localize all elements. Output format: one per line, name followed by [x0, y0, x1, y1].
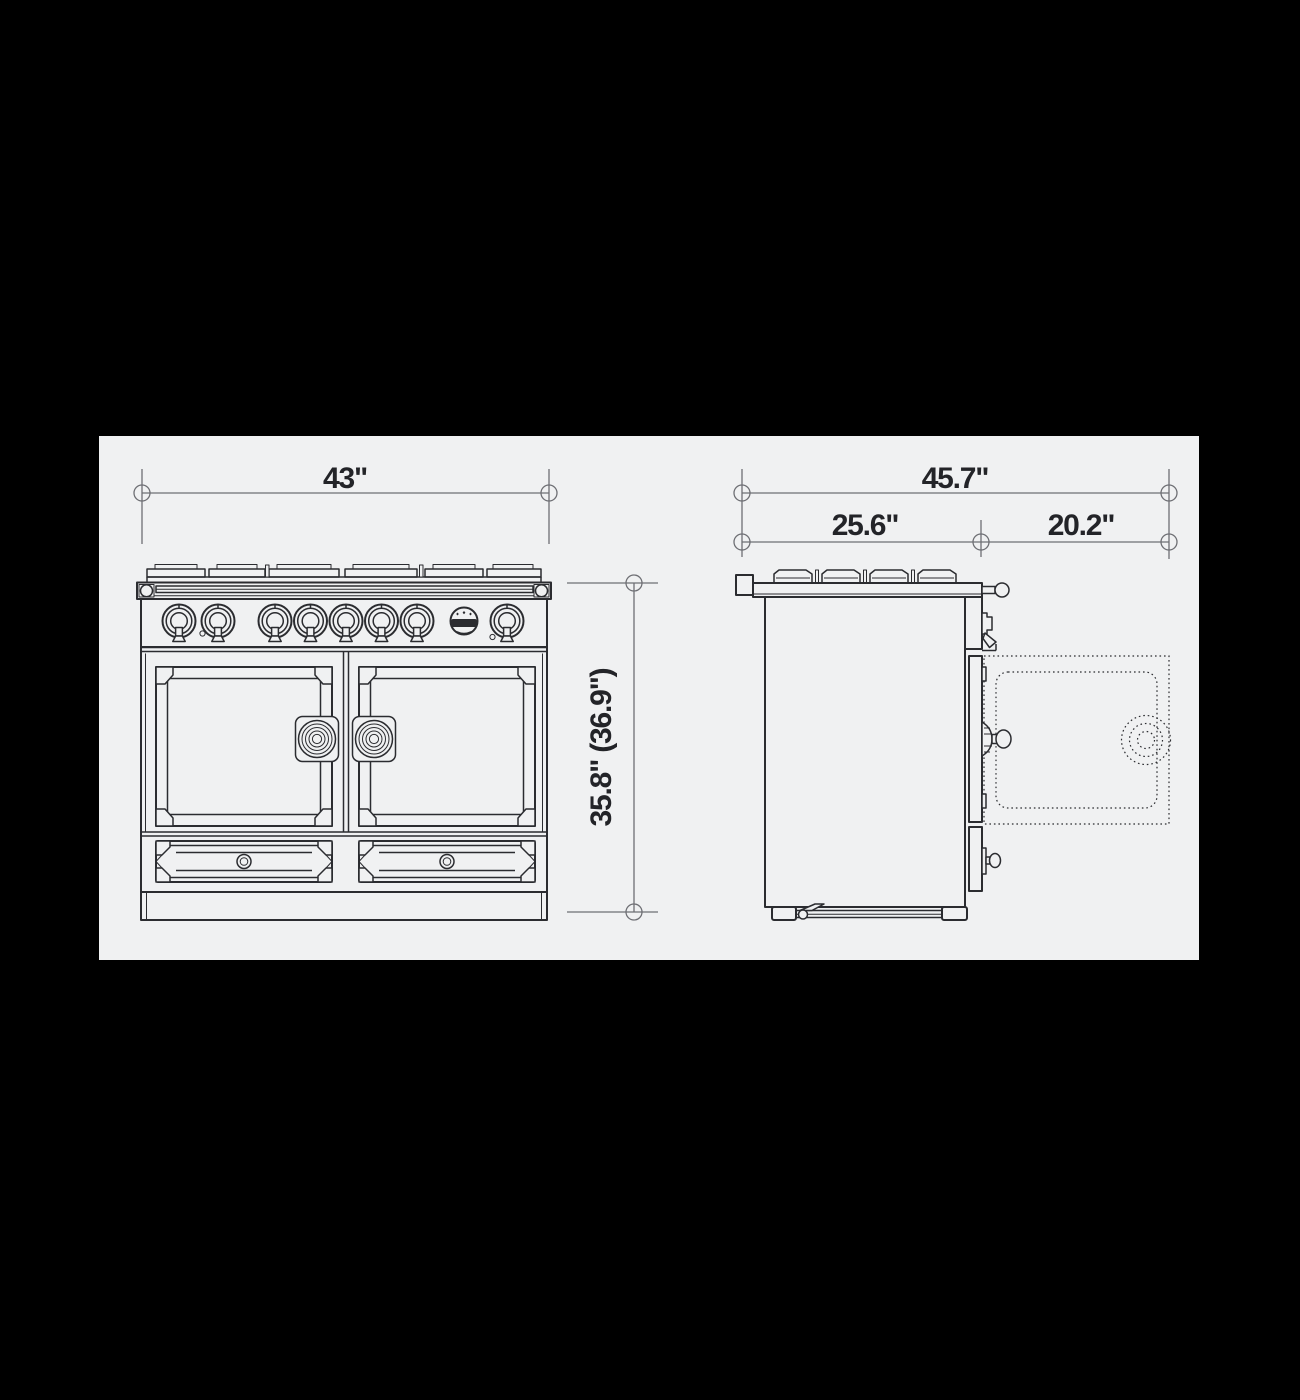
cooktop-front-rail	[137, 583, 551, 600]
diagram-panel: 43" 35.8" (36.9")	[99, 436, 1199, 960]
brand-badge-icon	[451, 608, 478, 635]
burner-knob	[491, 605, 524, 642]
right-storage-drawer	[359, 841, 535, 882]
front-view: 43" 35.8" (36.9")	[134, 462, 658, 920]
burner-knob	[365, 605, 398, 642]
cooktop-grates	[147, 565, 541, 583]
door-handle-knob	[996, 730, 1011, 748]
side-door-profile	[969, 656, 1011, 822]
side-view: 45.7" 25.6" 20.2"	[734, 462, 1177, 920]
front-range-drawing	[137, 565, 551, 921]
door-hinge	[982, 667, 986, 681]
leveling-wheel	[799, 910, 808, 919]
front-height-dimension: 35.8" (36.9")	[567, 575, 658, 920]
burner-knob	[294, 605, 327, 642]
rail-stub	[982, 587, 995, 594]
rail-ball-cap	[995, 583, 1009, 597]
range-dimension-drawing: 43" 35.8" (36.9")	[99, 436, 1199, 960]
control-panel	[141, 599, 547, 647]
burner-knob	[401, 605, 434, 642]
side-cooktop	[753, 570, 1009, 597]
side-range-drawing	[736, 570, 1011, 920]
side-body-depth-label: 25.6"	[832, 509, 899, 542]
left-storage-drawer	[156, 841, 332, 882]
foot	[772, 907, 796, 920]
burner-knob	[259, 605, 292, 642]
drawer-section	[156, 841, 535, 882]
front-width-label: 43"	[323, 462, 367, 495]
oven-section	[141, 599, 547, 892]
oven-center-divider	[344, 652, 349, 832]
plinth	[141, 892, 547, 920]
burner-knob	[163, 605, 196, 642]
front-width-dimension: 43"	[134, 462, 557, 544]
indicator-dot	[490, 634, 495, 639]
side-total-depth-label: 45.7"	[922, 462, 989, 495]
side-drawer-profile	[969, 827, 1001, 891]
side-split-depth-dimension: 25.6" 20.2"	[734, 509, 1177, 557]
side-control-panel-profile	[965, 597, 996, 651]
front-height-label: 35.8" (36.9")	[585, 668, 618, 826]
foot	[942, 907, 967, 920]
side-body	[765, 597, 965, 907]
knob-lever	[983, 633, 996, 648]
left-oven-door	[156, 667, 339, 826]
burner-knob	[202, 605, 235, 642]
backguard-trim	[736, 575, 753, 595]
knob-profile	[982, 613, 992, 634]
door-handle-cone	[982, 722, 992, 756]
open-door-outline	[984, 656, 1171, 824]
drawer-knob-profile	[990, 854, 1001, 868]
rail-end-cap	[536, 585, 548, 597]
side-door-open-depth-label: 20.2"	[1048, 509, 1115, 542]
panel-divider	[141, 648, 547, 652]
burner-knob	[330, 605, 363, 642]
right-oven-door	[353, 667, 536, 826]
indicator-dot	[200, 631, 205, 636]
rail-end-cap	[141, 585, 153, 597]
door-hinge	[982, 794, 986, 808]
